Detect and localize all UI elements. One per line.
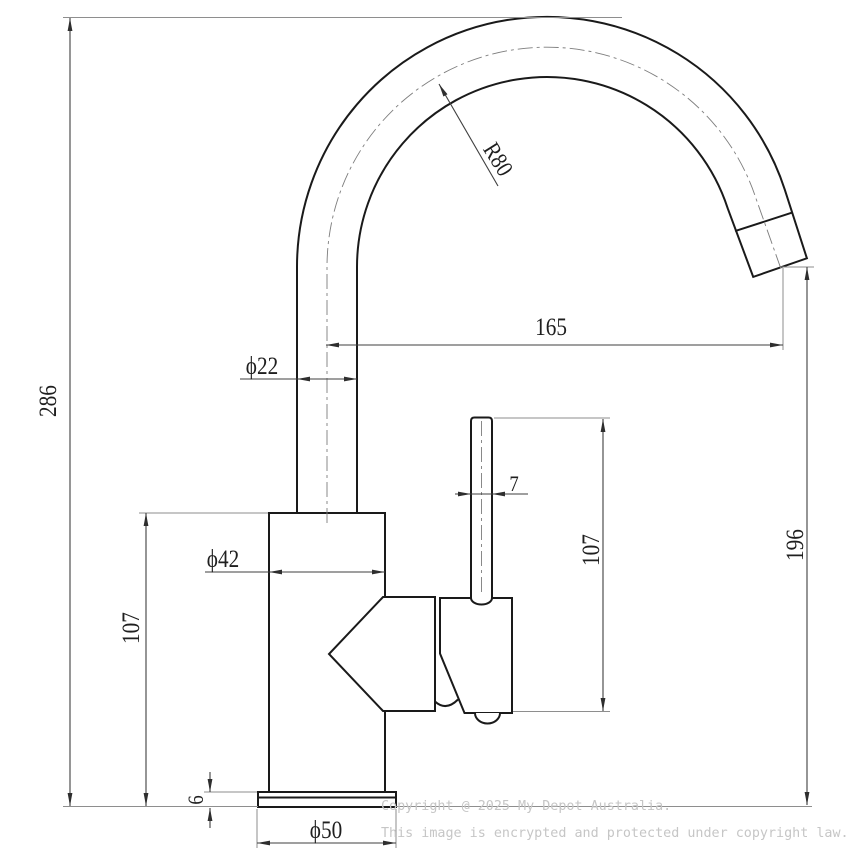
- technical-drawing-canvas: Copyright @ 2025 My Depot Australia. Thi…: [0, 0, 850, 850]
- handle-hub-bump: [475, 713, 500, 724]
- dim-label-outlet-height: 196: [782, 529, 810, 561]
- dim-label-lever-thickness: 7: [509, 471, 518, 497]
- handle-assembly: [435, 418, 512, 724]
- dim-label-overall-height: 286: [35, 385, 63, 417]
- pivot-arc: [435, 700, 458, 707]
- dim-label-spout-reach: 165: [535, 314, 567, 342]
- dim-label-lever-height: 107: [578, 534, 606, 566]
- base-flange: [258, 792, 396, 807]
- spout-outline: [297, 17, 807, 513]
- faucet-drawing: [0, 0, 850, 850]
- body-outline: [269, 513, 435, 792]
- dim-label-body-height: 107: [118, 612, 146, 644]
- dim-label-base-diameter: ϕ50: [310, 817, 342, 845]
- cartridge-cover: [440, 598, 512, 713]
- watermark-line-2: This image is encrypted and protected un…: [381, 826, 849, 841]
- watermark-line-1: Copyright @ 2025 My Depot Australia.: [381, 799, 671, 814]
- dim-label-body-diameter: ϕ42: [207, 546, 239, 574]
- dim-label-base-plate-thickness: 6: [183, 795, 209, 804]
- dim-label-spout-pipe-diameter: ϕ22: [246, 353, 278, 381]
